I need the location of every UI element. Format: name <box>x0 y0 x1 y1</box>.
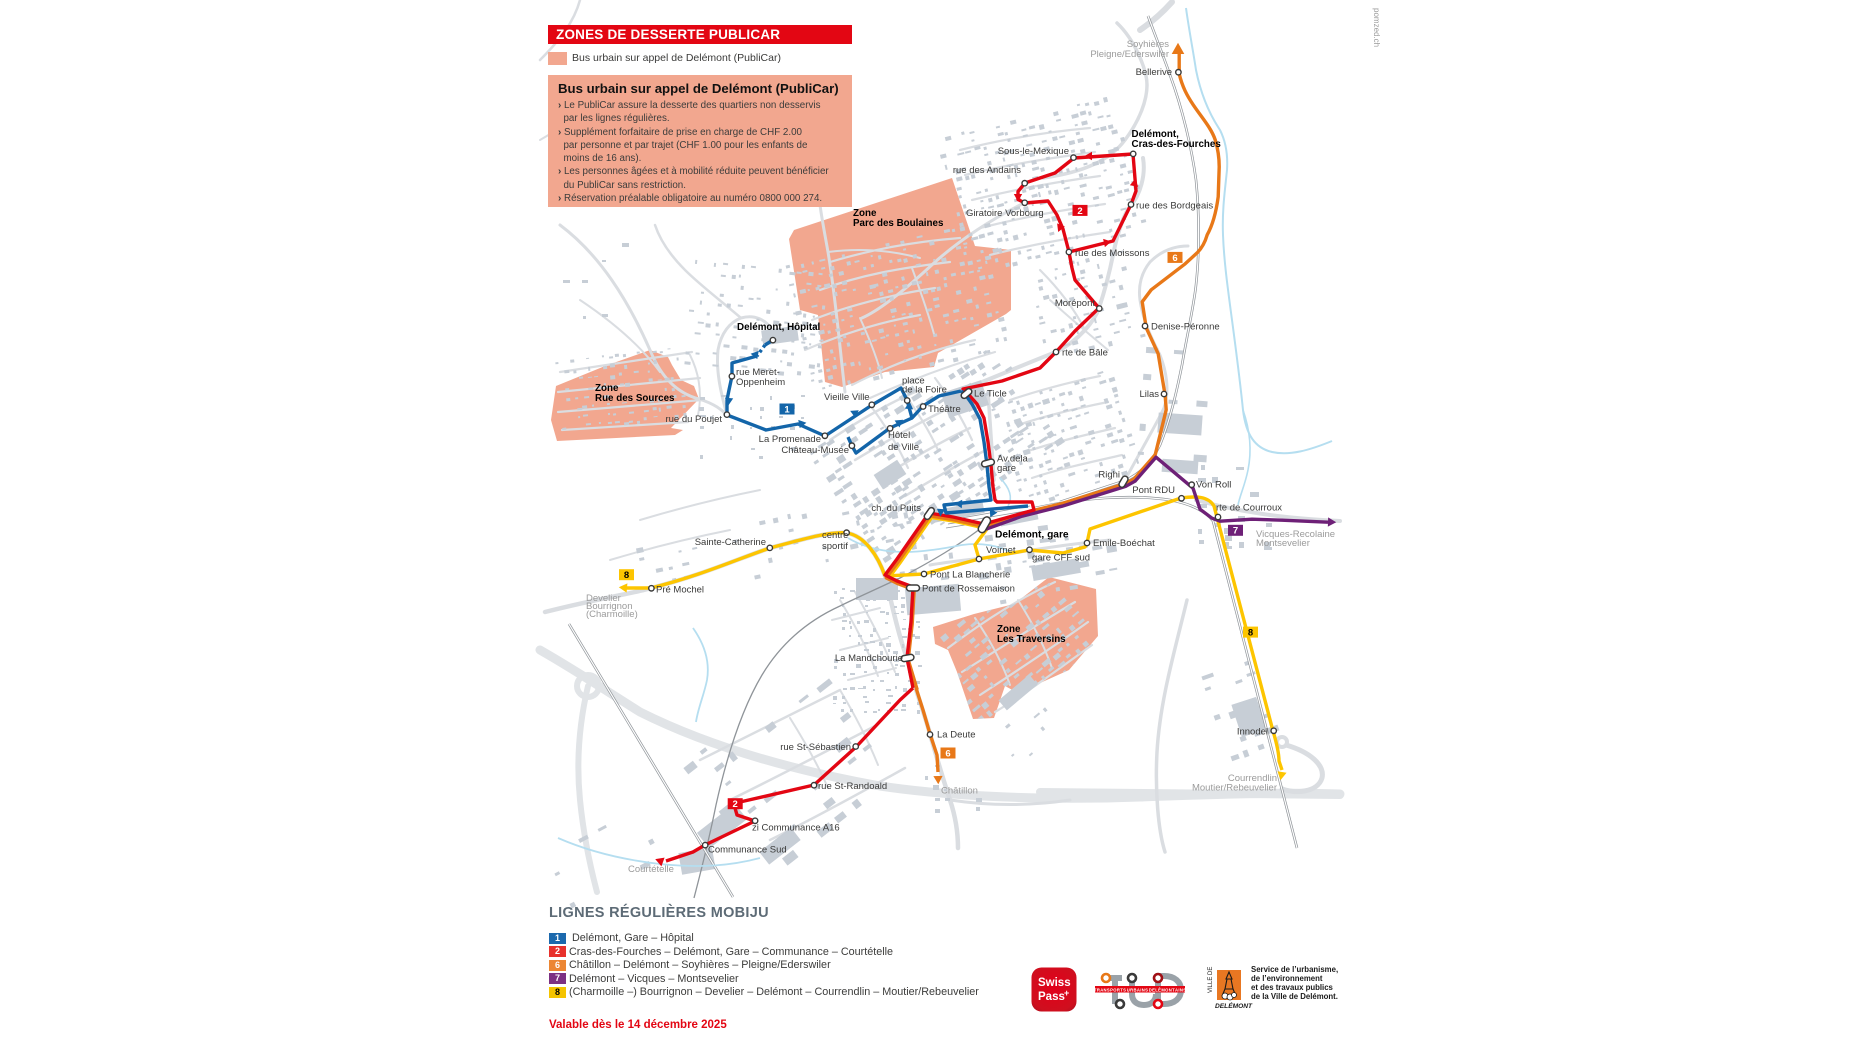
svg-text:6: 6 <box>945 748 950 759</box>
svg-text:Pont RDU: Pont RDU <box>1132 485 1175 496</box>
svg-text:rue des Moissons: rue des Moissons <box>1075 248 1150 259</box>
svg-text:de Ville: de Ville <box>888 442 919 453</box>
svg-text:6: 6 <box>1172 253 1177 264</box>
svg-text:Sous-le-Mexique: Sous-le-Mexique <box>998 146 1069 157</box>
svg-text:(Charmoille): (Charmoille) <box>586 609 638 620</box>
svg-text:Denise-Péronne: Denise-Péronne <box>1151 322 1220 333</box>
svg-text:Montsevelier: Montsevelier <box>1256 538 1310 549</box>
svg-text:centre: centre <box>822 530 848 541</box>
svg-text:de la Foire: de la Foire <box>902 385 947 396</box>
svg-text:Moutier/Rebeuvelier: Moutier/Rebeuvelier <box>1192 783 1277 794</box>
svg-text:Giratoire Vorbourg: Giratoire Vorbourg <box>966 208 1044 219</box>
svg-text:Communance Sud: Communance Sud <box>708 845 787 856</box>
svg-text:Pré Mochel: Pré Mochel <box>656 585 704 596</box>
svg-text:Pont de Rossemaison: Pont de Rossemaison <box>922 584 1015 595</box>
svg-text:Pleigne/Ederswiler: Pleigne/Ederswiler <box>1090 49 1169 60</box>
svg-text:DELÉMONT: DELÉMONT <box>1215 1001 1253 1010</box>
svg-text:Les Traversins: Les Traversins <box>997 634 1066 645</box>
svg-text:Emile-Boéchat: Emile-Boéchat <box>1093 538 1155 549</box>
svg-text:Pass: Pass <box>1038 991 1065 1003</box>
svg-text:8: 8 <box>1248 628 1253 639</box>
svg-text:gare: gare <box>997 463 1016 474</box>
svg-text:T R A N S P O R T S U R B A I: T R A N S P O R T S U R B A I N S D E L … <box>1094 987 1186 992</box>
svg-text:rue St-Randoald: rue St-Randoald <box>818 781 887 792</box>
svg-text:zi Communance A16: zi Communance A16 <box>752 823 840 834</box>
svg-text:sportif: sportif <box>822 541 848 552</box>
svg-text:Courtételle: Courtételle <box>628 864 674 875</box>
svg-text:Cras-des-Fourches: Cras-des-Fourches <box>1132 139 1222 150</box>
svg-text:Hôtel: Hôtel <box>888 430 910 441</box>
svg-text:Théâtre: Théâtre <box>928 404 961 415</box>
svg-text:La Deute: La Deute <box>937 730 976 741</box>
svg-text:Châtillon: Châtillon <box>941 786 978 797</box>
svg-text:Von Roll: Von Roll <box>1196 480 1231 491</box>
svg-text:rte de Courroux: rte de Courroux <box>1216 503 1282 514</box>
svg-text:8: 8 <box>624 570 629 581</box>
svg-text:Innodel: Innodel <box>1237 727 1268 738</box>
svg-text:rue du Poujet: rue du Poujet <box>665 414 722 425</box>
svg-text:Delémont, gare: Delémont, gare <box>995 530 1069 541</box>
svg-text:Oppenheim: Oppenheim <box>736 377 785 388</box>
svg-text:La Promenade: La Promenade <box>759 434 821 445</box>
svg-text:Vieille Ville: Vieille Ville <box>824 392 870 403</box>
svg-text:rue St-Sébastien: rue St-Sébastien <box>780 742 851 753</box>
svg-text:Rue des Sources: Rue des Sources <box>595 393 675 404</box>
svg-text:Château-Musée: Château-Musée <box>781 445 849 456</box>
svg-text:rue des Bordgeais: rue des Bordgeais <box>1136 201 1213 212</box>
svg-text:Sainte-Catherine: Sainte-Catherine <box>695 537 766 548</box>
svg-text:gare CFF sud: gare CFF sud <box>1032 553 1090 564</box>
svg-text:Bellerive: Bellerive <box>1136 67 1172 78</box>
svg-text:rte de Bâle: rte de Bâle <box>1062 348 1108 359</box>
svg-text:Pont La Blancherie: Pont La Blancherie <box>930 570 1010 581</box>
svg-text:Le Ticle: Le Ticle <box>974 389 1007 400</box>
svg-text:2: 2 <box>1077 206 1082 217</box>
svg-text:Delémont, Hôpital: Delémont, Hôpital <box>737 322 821 333</box>
svg-text:2: 2 <box>733 799 738 810</box>
svg-text:La Mandchourie: La Mandchourie <box>835 653 903 664</box>
svg-text:7: 7 <box>1233 526 1238 537</box>
svg-text:VILLE DE: VILLE DE <box>1208 967 1214 993</box>
svg-text:ch. du Puits: ch. du Puits <box>871 503 921 514</box>
svg-text:Lilas: Lilas <box>1139 389 1159 400</box>
svg-text:+: + <box>1064 988 1069 998</box>
svg-text:Voirnet: Voirnet <box>986 545 1016 556</box>
svg-text:1: 1 <box>784 404 790 415</box>
svg-text:Righi: Righi <box>1098 470 1120 481</box>
svg-text:Morépont: Morépont <box>1055 298 1095 309</box>
svg-text:Parc des Boulaines: Parc des Boulaines <box>853 218 944 229</box>
svg-text:rue des Andains: rue des Andains <box>953 165 1021 176</box>
